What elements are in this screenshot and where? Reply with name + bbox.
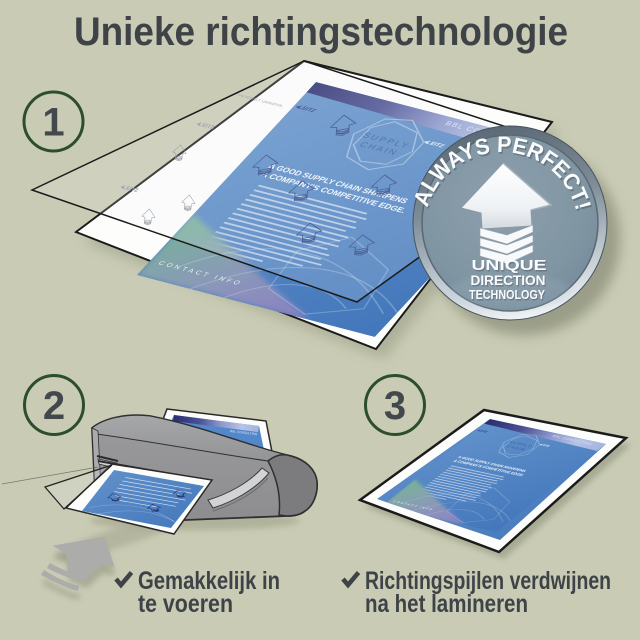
svg-text:Unieke richtingstechnologie: Unieke richtingstechnologie	[74, 10, 568, 54]
svg-text:UNIQUE: UNIQUE	[472, 257, 547, 274]
svg-text:TECHNOLOGY: TECHNOLOGY	[469, 287, 545, 302]
svg-text:3: 3	[384, 384, 406, 428]
svg-text:te voeren: te voeren	[138, 590, 233, 618]
svg-text:1: 1	[42, 101, 64, 145]
svg-text:2: 2	[43, 384, 65, 428]
svg-text:DIRECTION: DIRECTION	[471, 273, 546, 288]
svg-text:na het lamineren: na het lamineren	[365, 590, 528, 618]
